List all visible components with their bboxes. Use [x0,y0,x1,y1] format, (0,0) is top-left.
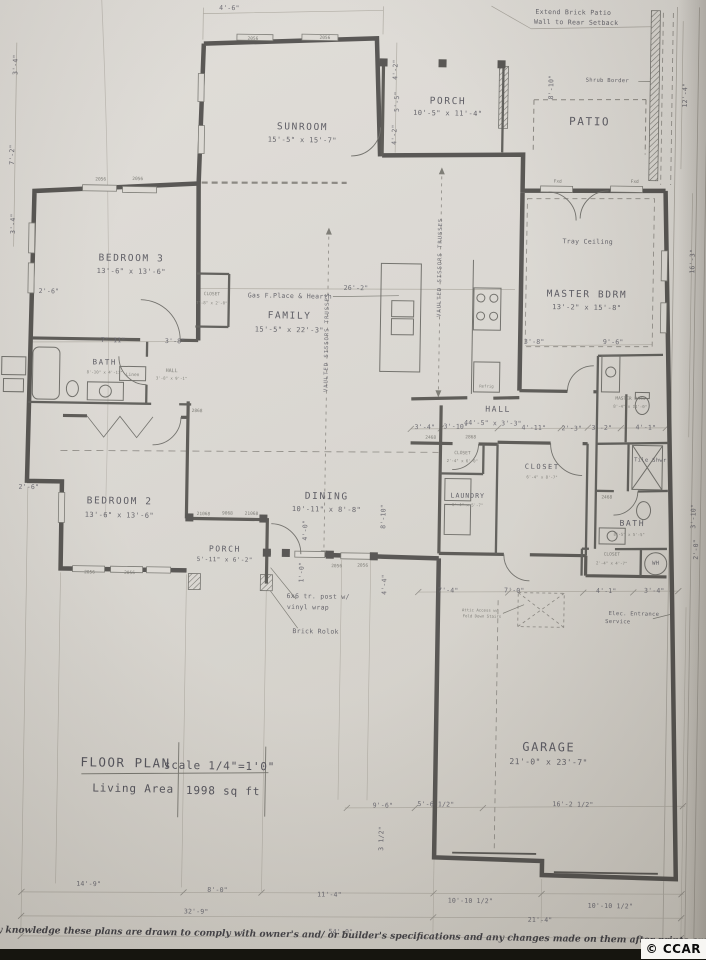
room-size-master-bath: 8'-4" x 11'-0" [613,404,647,410]
room-label-garage: GARAGE [522,740,575,755]
room-size-hall: 44'-5" x 3'-3" [464,419,522,428]
room-size-garage: 21'-0" x 23'-7" [509,757,587,767]
dim-bed3-left: 2'-6" [39,287,60,295]
size-tag: 9068 [222,511,233,516]
plan-title: FLOOR PLAN [80,754,170,770]
dim-bottom-d: 10'-10 1/2" [448,897,493,906]
note-shrub-border: Shrub Border [586,78,629,85]
room-size-bedroom2: 13'-6" x 13'-6" [85,511,154,520]
room-size-bedroom3: 13'-6" x 13'-6" [97,267,166,276]
room-size-bath-main: 8'-10" x 4'-11" [87,369,123,375]
room-label-master: MASTER BDRM [547,289,628,301]
dim-master-b: 9'-6" [603,338,624,346]
room-label-closet-laundry: CLOSET [454,451,470,456]
size-tag: 2468 [601,495,612,500]
dim-bottom-c: 11'-4" [317,890,342,898]
room-size-bath2: 8'-5" x 5'-5" [613,532,644,537]
room-label-closet-center: CLOSET [525,463,560,472]
room-label-laundry: LAUNDRY [451,492,486,501]
dim-garage-a: 7'-4" [438,586,459,594]
note-attic-access-1: Attic Access w/ [462,607,498,613]
dim-right-a: 3'-10" [689,504,697,529]
dim-bed3-b: 3'-8" [165,337,186,345]
size-tag: 2056 [247,37,258,42]
dim-front-b: 5'-6 1/2" [417,800,454,809]
room-size-porch-front: 5'-11" x 6'-2" [197,556,253,564]
exterior-walls [21,33,689,879]
room-size-closet-laundry: 2'-4" x 6'-0" [447,458,478,463]
living-area-value: 1998 sq ft [186,784,260,798]
room-label-linen: Linen [126,373,140,378]
dim-bottom-e: 10'-10 1/2" [588,902,633,911]
room-label-bath-main: BATH [93,357,118,366]
dim-front-a: 9'-6" [373,801,394,809]
blueprint-photo: SUNROOM 15'-5" x 15'-7" PORCH 10'-5" x 1… [0,0,706,960]
room-label-bedroom2: BEDROOM 2 [87,495,153,507]
room-label-hall-small: HALL [166,368,178,374]
plan-scale: scale 1/4"=1'0" [164,759,276,774]
room-label-family: FAMILY [268,310,312,322]
room-label-patio: PATIO [569,115,610,129]
size-tag: 2868 [192,409,203,414]
dim-bottom-a: 14'-9" [76,880,101,888]
dim-master-a: 3'-8" [524,338,545,346]
note-extend-patio-2: Wall to Rear Setback [534,18,618,27]
dim-right-master: 16'-3" [688,249,696,274]
dim-dining-a: 4'-0" [301,520,309,541]
note-tray-ceiling: Tray Ceiling [562,237,613,246]
note-attic-access-2: Fold Down Stairs [463,613,502,619]
dim-porch-right: 8'-10" [547,75,555,100]
dim-hall-c: 4'-11" [521,424,546,432]
size-tag: 2056 [95,177,106,182]
photo-bottom-strip [0,949,706,960]
room-label-water-heater: WH [652,561,659,567]
dim-bottom-f: 32'-9" [184,907,209,915]
dim-garage-d: 3'-4" [644,587,665,595]
room-label-dining: DINING [305,491,349,503]
size-tag: 2056 [132,177,143,182]
room-label-sunroom: SUNROOM [277,121,328,133]
room-label-hall: HALL [485,405,511,414]
dim-family-width: 26'-2" [344,284,369,292]
size-tag: 2868 [465,435,476,440]
note-brick-rolok: Brick Rolok [292,627,338,636]
size-tag: Fxd [631,180,639,185]
room-label-bath2: BATH [619,519,645,528]
size-tag: 2056 [84,570,95,575]
dim-step: 3 1/2" [377,826,385,851]
dim-bottom-b: 8'-0" [207,886,228,894]
living-area-label: Living Area [92,781,174,795]
dim-bed2-left: 2'-6" [19,483,40,491]
dim-hall-d: 2'-3" [561,424,582,432]
dim-hall-b: 3'-10" [443,422,468,430]
note-elec-service-1: Elec. Entrance [609,611,660,618]
room-label-master-bath: MASTER BATH [615,397,645,402]
note-post-wrap-1: 6x6 tr. post w/ [287,592,350,601]
note-extend-patio-1: Extend Brick Patio [535,8,611,17]
room-size-hall-small: 3'-8" x 9'-1" [156,375,187,380]
size-tag: 2056 [357,564,368,569]
room-size-laundry: 6'-4" x 5'-7" [452,502,483,507]
floor-plan-sheet: SUNROOM 15'-5" x 15'-7" PORCH 10'-5" x 1… [0,0,706,960]
dim-garage-b: 7'-0" [504,586,525,594]
fixtures [0,252,671,574]
size-tag: 21068 [197,512,211,517]
room-size-sunroom: 15'-5" x 15'-7" [268,136,337,145]
room-size-closet-center: 6'-4" x 8'-7" [526,474,557,479]
dim-hall-a: 3'-4" [414,423,435,431]
room-size-master: 13'-2" x 15'-8" [552,303,621,312]
floor-plan-drawing [0,0,706,960]
room-label-refrig: Refrig [479,383,494,388]
dim-patio-right: 12'-4" [681,83,689,108]
note-elec-service-2: Service [605,619,630,625]
dim-right-b: 2'-0" [692,539,700,560]
room-size-family: 15'-5" x 22'-3" [255,325,324,334]
note-post-wrap-2: vinyl wrap [287,603,329,612]
room-size-closet-master: 2'-4" x 4'-7" [596,560,627,565]
dim-garage-c: 4'-1" [596,587,617,595]
size-tag: 2056 [319,36,330,41]
dim-hall-e: 3'-2" [591,424,612,432]
dim-bed3-a: 7'-11" [101,336,126,344]
dim-porch-left-b: 5'-5" [393,91,401,112]
porch-posts [185,55,506,562]
dim-hall-f: 4'-1" [636,423,657,431]
dim-dining-d: 4'-4" [380,574,388,595]
room-label-porch-front: PORCH [209,544,241,554]
room-label-porch-rear: PORCH [430,96,467,108]
size-tag: 2468 [425,436,436,441]
dim-front-c: 16'-2 1/2" [552,800,593,809]
dim-left-c: 3'-4" [9,213,17,234]
room-size-porch-rear: 10'-5" x 11'-4" [413,109,482,118]
size-tag: Fxd [554,180,562,185]
dim-porch-left-a: 4'-2" [391,59,399,80]
room-label-closet-bed3: CLOSET [204,292,220,297]
room-label-closet-master: CLOSET [604,552,620,557]
room-size-dining: 10'-11" x 8'-8" [292,505,361,514]
dim-left-a: 3'-4" [11,54,19,75]
size-tag: 2056 [124,571,135,576]
dim-top-sunroom: 4'-6" [219,4,240,12]
size-tag: 21068 [245,512,259,517]
dim-left-b: 7'-2" [8,144,16,165]
ccar-logo: © CCAR [641,939,706,959]
room-size-closet-bed3: 7'-8" x 2'-0" [196,300,227,305]
room-label-bedroom3: BEDROOM 3 [98,252,164,264]
note-gas-fireplace: Gas F.Place & Hearth [248,291,332,300]
garage-doors [452,853,658,874]
size-tag: 2056 [331,564,342,569]
dim-dining-c: 8'-10" [379,504,387,529]
dim-dining-b: 1'-0" [297,562,305,583]
dim-bottom-g: 21'-4" [528,916,553,924]
dim-porch-left-c: 4'-2" [390,124,398,145]
room-label-tile-shower: Tile Shwr [634,457,667,464]
